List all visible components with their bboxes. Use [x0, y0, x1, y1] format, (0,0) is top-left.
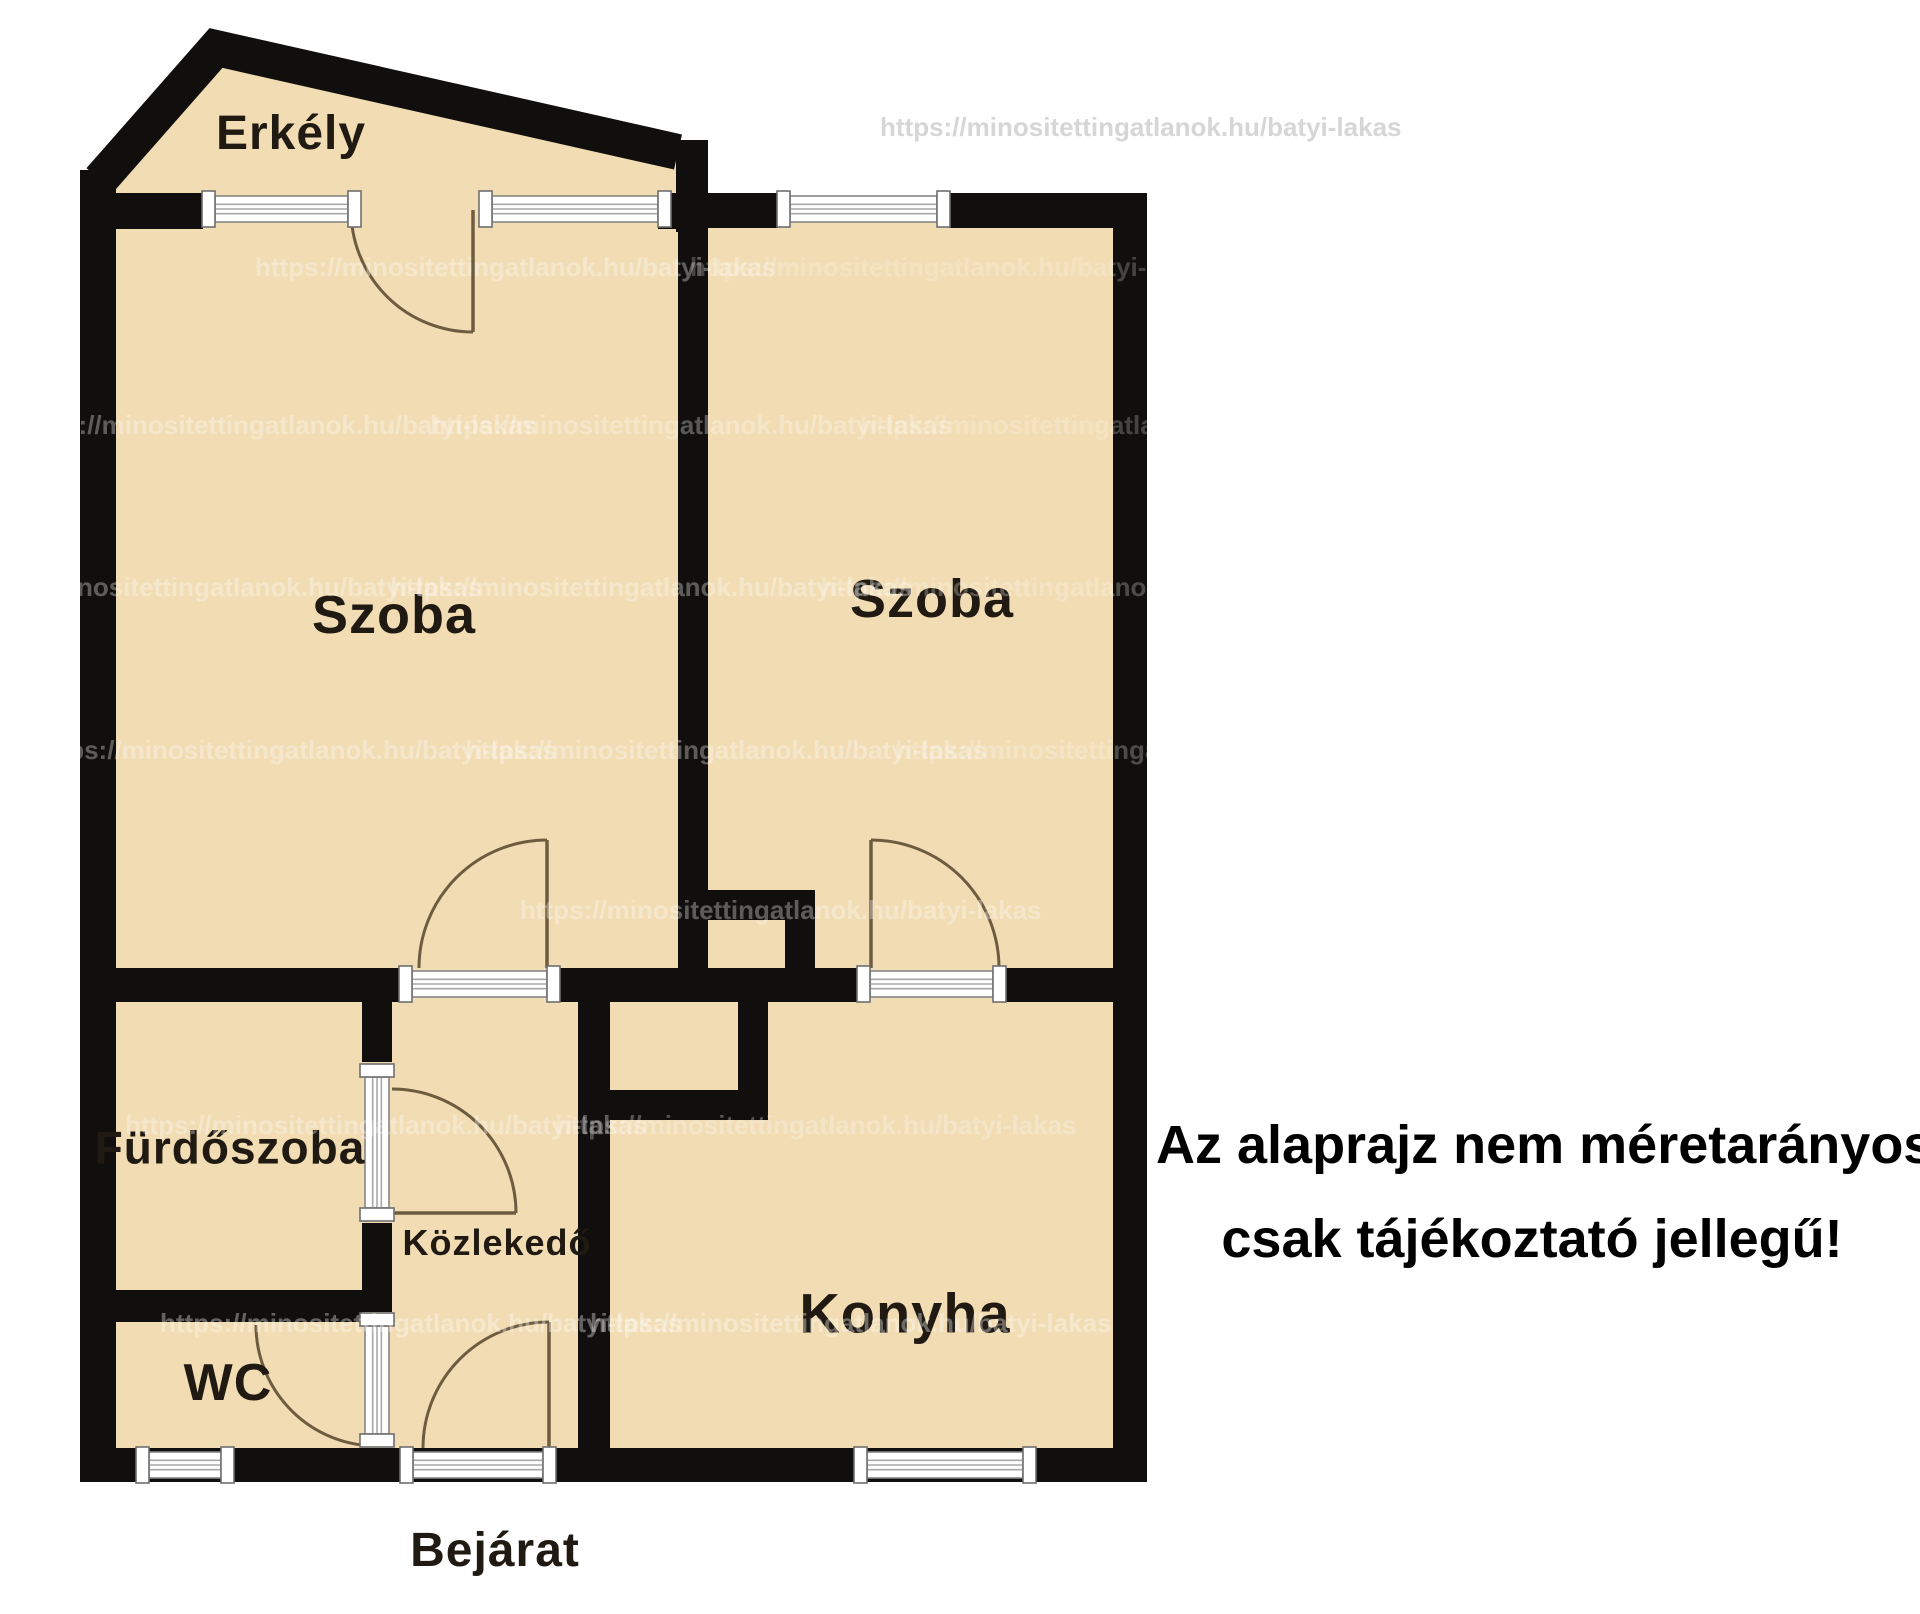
- room-label-erkly: Erkély: [216, 106, 366, 161]
- apartment-floor: [98, 196, 1130, 1466]
- entrance-door-sill-jamb: [400, 1447, 413, 1483]
- bathroom-door-panel-jamb: [360, 1208, 394, 1221]
- room-label-bejrat: Bejárat: [410, 1523, 580, 1578]
- room-label-szoba: Szoba: [850, 568, 1014, 630]
- wall: [362, 1002, 392, 1062]
- wall: [949, 193, 1113, 228]
- wall: [678, 222, 708, 975]
- bathroom-door-panel-jamb: [360, 1064, 394, 1077]
- room-label-kzleked: Közlekedő: [402, 1222, 591, 1264]
- room-left-door-sill-jamb: [399, 966, 412, 1002]
- room-right-top-window-jamb: [937, 191, 950, 227]
- wall: [1113, 193, 1147, 1482]
- wall: [80, 170, 116, 1482]
- wc-window-jamb: [136, 1447, 149, 1483]
- disclaimer-line-2: csak tájékoztató jellegű!: [1156, 1192, 1908, 1286]
- floor-plan-drawing: [0, 0, 1920, 1614]
- wall: [738, 1002, 768, 1120]
- room-label-szoba: Szoba: [312, 584, 476, 646]
- room-right-door-sill-jamb: [993, 966, 1006, 1002]
- entrance-door-sill-jamb: [543, 1447, 556, 1483]
- wc-door-panel-jamb: [360, 1313, 394, 1326]
- room-left-door-sill-jamb: [547, 966, 560, 1002]
- wall: [1005, 968, 1113, 1002]
- wall: [362, 1223, 392, 1312]
- room-right-top-window-jamb: [777, 191, 790, 227]
- balcony-window-left-jamb: [348, 191, 361, 227]
- room-label-konyha: Konyha: [799, 1280, 1010, 1345]
- wall: [785, 920, 815, 975]
- disclaimer-line-1: Az alaprajz nem méretarányos,: [1156, 1098, 1908, 1192]
- floor-plan-page: ErkélySzobaSzobaFürdőszobaKözlekedőKonyh…: [0, 0, 1920, 1614]
- balcony-window-right-jamb: [479, 191, 492, 227]
- balcony-window-left-jamb: [202, 191, 215, 227]
- balcony-window-right-jamb: [658, 191, 671, 227]
- wall: [116, 968, 400, 1002]
- wc-window-jamb: [221, 1447, 234, 1483]
- wc-door-panel-jamb: [360, 1434, 394, 1447]
- kitchen-window-jamb: [854, 1447, 867, 1483]
- wall: [116, 1290, 362, 1322]
- wall: [116, 193, 203, 229]
- room-label-wc: WC: [184, 1353, 273, 1413]
- wall: [708, 890, 815, 920]
- room-right-door-sill-jamb: [857, 966, 870, 1002]
- disclaimer-note: Az alaprajz nem méretarányos, csak tájék…: [1156, 1098, 1908, 1286]
- kitchen-window-jamb: [1023, 1447, 1036, 1483]
- room-label-frdszoba: Fürdőszoba: [95, 1120, 366, 1174]
